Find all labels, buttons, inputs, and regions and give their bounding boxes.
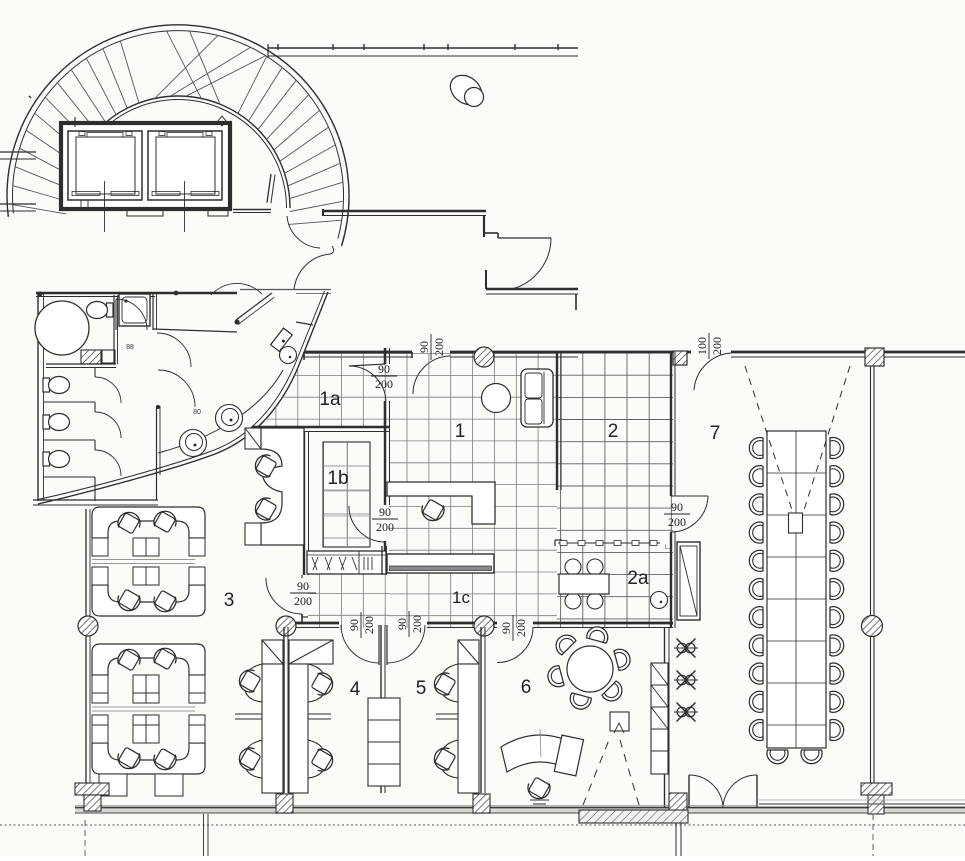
svg-text:90: 90	[297, 579, 309, 593]
svg-text:1b: 1b	[327, 468, 348, 489]
svg-text:2a: 2a	[627, 568, 649, 589]
svg-text:90: 90	[379, 505, 391, 519]
svg-text:200: 200	[410, 615, 424, 633]
svg-text:90: 90	[417, 341, 431, 353]
svg-text:200: 200	[362, 616, 376, 634]
svg-text:90: 90	[395, 618, 409, 630]
svg-text:200: 200	[375, 377, 393, 391]
svg-text:6: 6	[521, 677, 532, 698]
svg-text:2: 2	[608, 421, 619, 442]
svg-text:90: 90	[347, 619, 361, 631]
svg-text:80: 80	[193, 409, 201, 416]
svg-text:200: 200	[514, 619, 528, 637]
svg-text:200: 200	[710, 337, 724, 355]
svg-text:1: 1	[455, 421, 466, 442]
svg-text:L.: L.	[665, 545, 670, 551]
svg-text:200: 200	[432, 338, 446, 356]
svg-text:1a: 1a	[319, 389, 341, 410]
svg-text:200: 200	[376, 520, 394, 534]
svg-text:90: 90	[499, 622, 513, 634]
svg-text:7: 7	[710, 423, 721, 444]
svg-text:3: 3	[224, 590, 235, 611]
svg-text:100: 100	[695, 337, 709, 355]
svg-text:90: 90	[671, 500, 683, 514]
svg-text:200: 200	[668, 515, 686, 529]
svg-text:5: 5	[416, 678, 427, 699]
svg-text:1c: 1c	[452, 588, 470, 607]
svg-text:90: 90	[378, 362, 390, 376]
svg-text:4: 4	[350, 679, 361, 700]
svg-text:88: 88	[126, 344, 134, 351]
svg-text:200: 200	[294, 594, 312, 608]
